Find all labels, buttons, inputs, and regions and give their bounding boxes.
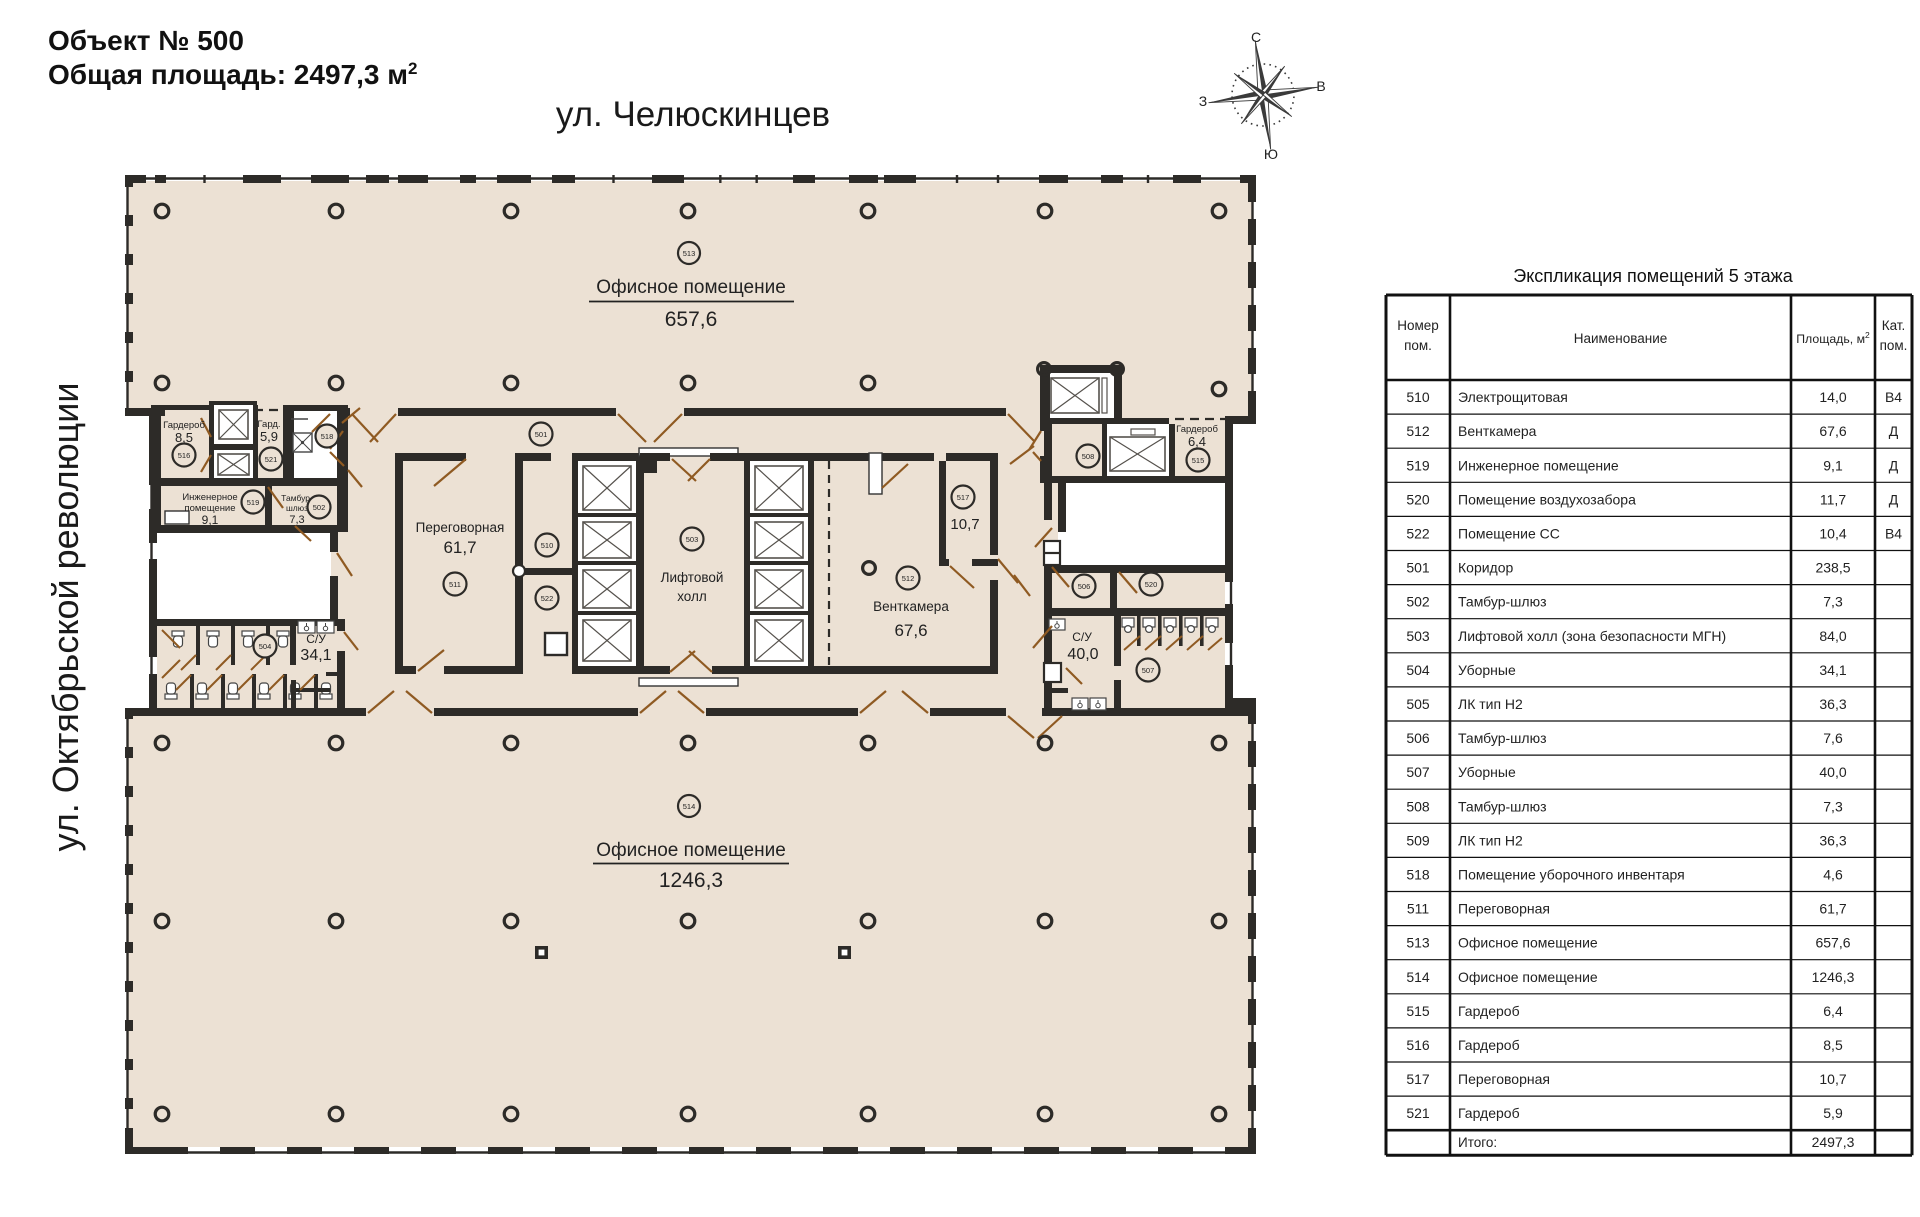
svg-text:Офисное помещение: Офисное помещение [596,840,786,861]
svg-text:Переговорная: Переговорная [416,520,505,535]
svg-text:514: 514 [1406,969,1430,985]
svg-text:ЛК тип Н2: ЛК тип Н2 [1458,832,1523,848]
svg-text:522: 522 [541,594,554,603]
svg-text:36,3: 36,3 [1819,832,1846,848]
svg-text:512: 512 [1406,423,1430,439]
svg-text:518: 518 [1406,866,1430,882]
svg-text:84,0: 84,0 [1819,628,1846,644]
svg-text:ЛК тип Н2: ЛК тип Н2 [1458,696,1523,712]
svg-text:508: 508 [1406,798,1430,814]
svg-text:Кат.: Кат. [1882,318,1906,333]
svg-text:1246,3: 1246,3 [659,869,723,892]
svg-text:520: 520 [1145,580,1158,589]
svg-text:Помещение СС: Помещение СС [1458,525,1560,541]
svg-text:10,4: 10,4 [1819,525,1846,541]
svg-text:Венткамера: Венткамера [1458,423,1537,439]
svg-text:Тамбур-шлюз: Тамбур-шлюз [1458,594,1547,610]
svg-text:508: 508 [1082,452,1095,461]
svg-text:40,0: 40,0 [1067,646,1098,663]
svg-text:520: 520 [1406,491,1430,507]
svg-text:1246,3: 1246,3 [1812,969,1855,985]
svg-text:7,3: 7,3 [1823,798,1843,814]
svg-text:515: 515 [1192,456,1205,465]
svg-text:Д: Д [1889,491,1899,507]
svg-text:Итого:: Итого: [1458,1135,1497,1150]
svg-text:Наименование: Наименование [1574,331,1668,346]
svg-text:521: 521 [265,455,278,464]
svg-text:Гардероб: Гардероб [1458,1037,1520,1053]
svg-text:ул. Челюскинцев: ул. Челюскинцев [556,95,830,134]
svg-text:7,6: 7,6 [1823,730,1843,746]
svg-text:10,7: 10,7 [950,516,979,533]
svg-text:657,6: 657,6 [1815,935,1850,951]
svg-text:6,4: 6,4 [1188,434,1206,449]
svg-text:пом.: пом. [1404,338,1432,353]
svg-text:40,0: 40,0 [1819,764,1846,780]
svg-text:З: З [1199,93,1207,109]
svg-text:пом.: пом. [1880,338,1908,353]
svg-text:7,3: 7,3 [289,514,304,526]
svg-text:517: 517 [1406,1071,1430,1087]
svg-text:238,5: 238,5 [1815,560,1850,576]
svg-text:Гардероб: Гардероб [1458,1003,1520,1019]
svg-text:Экспликация помещений 5 этажа: Экспликация помещений 5 этажа [1513,266,1793,286]
svg-text:4,6: 4,6 [1823,866,1843,882]
svg-text:Тамбур-шлюз: Тамбур-шлюз [1458,798,1547,814]
svg-text:503: 503 [1406,628,1430,644]
svg-text:506: 506 [1078,582,1091,591]
svg-text:515: 515 [1406,1003,1430,1019]
svg-text:С/У: С/У [306,632,326,646]
svg-text:Коридор: Коридор [1458,560,1514,576]
svg-text:522: 522 [1406,525,1430,541]
svg-text:Номер: Номер [1397,318,1439,333]
svg-text:Уборные: Уборные [1458,764,1516,780]
svg-text:ул. Октябрьской революции: ул. Октябрьской революции [45,383,86,852]
svg-text:шлюз: шлюз [286,503,308,513]
svg-text:34,1: 34,1 [1819,662,1846,678]
svg-text:5,9: 5,9 [260,429,278,444]
svg-text:61,7: 61,7 [1819,901,1846,917]
svg-text:Помещение воздухозабора: Помещение воздухозабора [1458,491,1636,507]
svg-text:Ю: Ю [1264,146,1278,162]
svg-text:36,3: 36,3 [1819,696,1846,712]
svg-text:С/У: С/У [1072,630,1092,644]
svg-text:В4: В4 [1885,389,1902,405]
svg-text:Д: Д [1889,423,1899,439]
svg-text:504: 504 [1406,662,1430,678]
svg-text:Площадь, м2: Площадь, м2 [1796,330,1870,346]
svg-text:507: 507 [1406,764,1430,780]
svg-text:502: 502 [1406,594,1430,610]
svg-text:513: 513 [683,249,696,258]
svg-text:67,6: 67,6 [894,621,927,640]
svg-text:519: 519 [247,498,260,507]
svg-text:7,3: 7,3 [1823,594,1843,610]
svg-text:Лифтовой холл (зона безопаснос: Лифтовой холл (зона безопасности МГН) [1458,628,1726,644]
svg-text:61,7: 61,7 [443,538,476,557]
svg-text:504: 504 [259,642,272,651]
svg-text:Общая площадь: 2497,3 м2: Общая площадь: 2497,3 м2 [48,59,417,90]
svg-text:Офисное помещение: Офисное помещение [596,277,786,298]
svg-text:Электрощитовая: Электрощитовая [1458,389,1568,405]
svg-text:Уборные: Уборные [1458,662,1516,678]
svg-text:510: 510 [541,541,554,550]
svg-text:507: 507 [1142,666,1155,675]
svg-text:14,0: 14,0 [1819,389,1846,405]
svg-text:8,5: 8,5 [1823,1037,1843,1053]
svg-text:517: 517 [957,493,970,502]
svg-text:Переговорная: Переговорная [1458,1071,1550,1087]
svg-text:513: 513 [1406,935,1430,951]
svg-text:657,6: 657,6 [665,308,718,331]
svg-text:501: 501 [535,430,548,439]
svg-text:Лифтовой: Лифтовой [661,570,724,585]
svg-text:509: 509 [1406,832,1430,848]
svg-text:Тамбур-шлюз: Тамбур-шлюз [1458,730,1547,746]
svg-text:506: 506 [1406,730,1430,746]
svg-text:Д: Д [1889,457,1899,473]
svg-text:10,7: 10,7 [1819,1071,1846,1087]
svg-text:Помещение уборочного инвентаря: Помещение уборочного инвентаря [1458,866,1685,882]
svg-text:Венткамера: Венткамера [873,599,949,614]
svg-text:516: 516 [178,451,191,460]
svg-text:521: 521 [1406,1105,1430,1121]
svg-text:518: 518 [321,432,334,441]
svg-text:Офисное помещение: Офисное помещение [1458,969,1598,985]
svg-text:Переговорная: Переговорная [1458,901,1550,917]
svg-text:516: 516 [1406,1037,1430,1053]
svg-text:505: 505 [1406,696,1430,712]
svg-text:512: 512 [902,574,915,583]
svg-text:519: 519 [1406,457,1430,473]
svg-text:6,4: 6,4 [1823,1003,1843,1019]
svg-text:502: 502 [313,503,326,512]
svg-text:503: 503 [686,535,699,544]
svg-text:34,1: 34,1 [300,647,331,664]
svg-text:5,9: 5,9 [1823,1105,1843,1121]
svg-text:Офисное помещение: Офисное помещение [1458,935,1598,951]
svg-text:С: С [1251,29,1261,45]
svg-text:511: 511 [1407,901,1430,917]
svg-text:В: В [1316,78,1325,94]
svg-text:Инженерное помещение: Инженерное помещение [1458,457,1619,473]
svg-text:501: 501 [1406,560,1430,576]
svg-text:холл: холл [677,589,707,604]
svg-text:В4: В4 [1885,525,1902,541]
svg-text:510: 510 [1406,389,1430,405]
svg-text:514: 514 [683,802,696,811]
svg-text:67,6: 67,6 [1819,423,1846,439]
svg-text:2497,3: 2497,3 [1812,1134,1855,1150]
svg-text:11,7: 11,7 [1820,491,1846,507]
svg-text:Гардероб: Гардероб [1458,1105,1520,1121]
svg-text:9,1: 9,1 [202,513,219,527]
svg-text:Инженерное: Инженерное [182,492,237,503]
svg-text:9,1: 9,1 [1823,457,1843,473]
svg-text:Объект № 500: Объект № 500 [48,25,244,56]
svg-text:511: 511 [449,580,461,589]
